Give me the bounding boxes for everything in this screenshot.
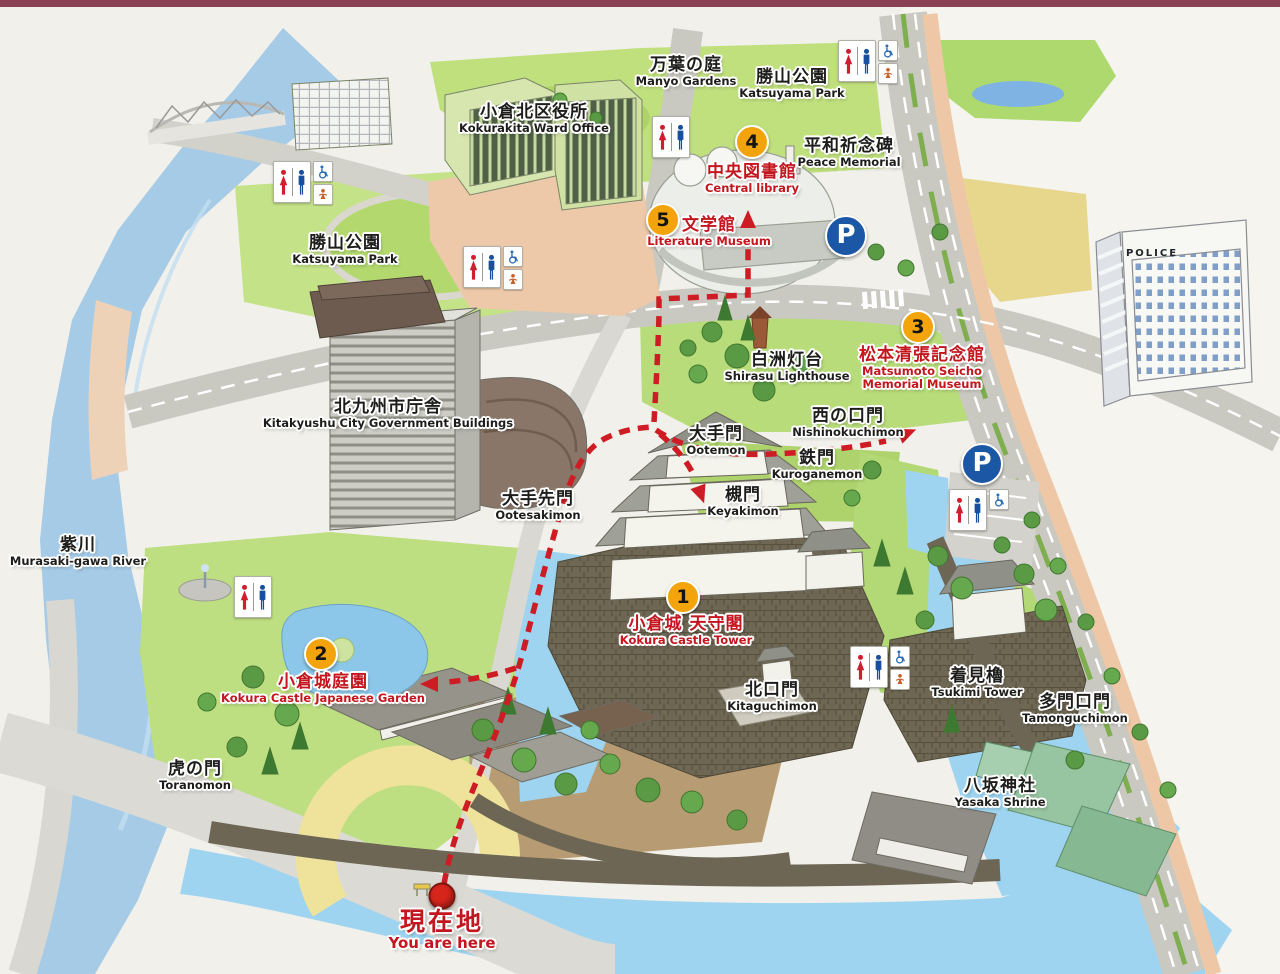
place-name-english: Literature Museum: [647, 235, 771, 248]
place-name-japanese: 文学館: [647, 215, 771, 235]
place-label-peace-memorial: 平和祈念碑Peace Memorial: [797, 136, 900, 169]
female-icon: [238, 584, 251, 611]
female-icon: [953, 497, 966, 524]
place-name-japanese: 勝山公園: [292, 233, 397, 253]
place-label-toranomon: 虎の門Toranomon: [159, 759, 231, 792]
place-name-english: Kokura Castle Japanese Garden: [221, 692, 425, 705]
place-label-keyakimon: 槻門Keyakimon: [707, 485, 778, 518]
male-icon: [256, 584, 269, 611]
baby-icon: [313, 184, 333, 205]
restroom-icon: [652, 116, 690, 158]
place-name-english: Central library: [705, 182, 799, 195]
place-name-english: Tamonguchimon: [1022, 712, 1128, 725]
place-label-katsuyama-park-west: 勝山公園Katsuyama Park: [292, 233, 397, 266]
wheelchair-icon: [313, 161, 333, 182]
male-female-restroom-sign: [234, 576, 272, 618]
place-name-japanese: 勝山公園: [739, 67, 844, 87]
place-label-murasaki-gawa-river: 紫川Murasaki-gawa River: [10, 535, 146, 568]
wheelchair-icon: [503, 246, 523, 267]
place-name-japanese: 小倉北区役所: [459, 102, 609, 122]
male-icon: [860, 48, 873, 75]
place-name-english: Kokurakita Ward Office: [459, 122, 609, 135]
place-label-tsukimi-tower: 着見櫓Tsukimi Tower: [931, 666, 1022, 699]
place-name-japanese: 西の口門: [792, 406, 903, 426]
place-name-japanese: 大手先門: [495, 489, 580, 509]
divider: [292, 168, 293, 196]
baby-icon: [503, 269, 523, 290]
place-label-you-are-here: 現在地You are here: [388, 908, 495, 952]
accessibility-icons: [890, 646, 910, 690]
place-name-english: Peace Memorial: [797, 156, 900, 169]
place-label-yasaka-shrine: 八坂神社Yasaka Shrine: [954, 776, 1045, 809]
you-are-here-marker: [429, 883, 456, 910]
place-name-english: Kitaguchimon: [727, 700, 817, 713]
current-location-dot: [429, 883, 456, 910]
place-label-matsumoto-seicho-memorial-museum: 松本清張記念館Matsumoto Seicho Memorial Museum: [859, 345, 985, 391]
place-label-shirasu-lighthouse: 白洲灯台Shirasu Lighthouse: [725, 350, 850, 383]
place-label-manyo-gardens: 万葉の庭Manyo Gardens: [636, 55, 737, 88]
place-name-english: Katsuyama Park: [292, 253, 397, 266]
place-label-kokura-castle-tower: 小倉城 天守閣Kokura Castle Tower: [620, 614, 752, 647]
site-number-badge-4: 4: [735, 125, 769, 159]
place-name-english: Katsuyama Park: [739, 87, 844, 100]
place-name-english: Kitakyushu City Government Buildings: [263, 417, 513, 430]
accessibility-icons: [313, 161, 333, 205]
place-name-english: Toranomon: [159, 779, 231, 792]
female-icon: [467, 254, 480, 281]
place-name-english: POLICE: [1126, 247, 1178, 260]
male-female-restroom-sign: [652, 116, 690, 158]
place-label-nishinokuchimon: 西の口門Nishinokuchimon: [792, 406, 903, 439]
place-name-english: Yasaka Shrine: [954, 796, 1045, 809]
place-name-japanese: 現在地: [388, 908, 495, 935]
map-root: PP12345万葉の庭Manyo Gardens勝山公園Katsuyama Pa…: [0, 0, 1280, 974]
male-icon: [971, 497, 984, 524]
place-name-japanese: 松本清張記念館: [859, 345, 985, 365]
place-name-japanese: 着見櫓: [931, 666, 1022, 686]
male-icon: [485, 254, 498, 281]
place-name-english: Keyakimon: [707, 505, 778, 518]
wheelchair-icon: [989, 489, 1009, 510]
place-label-kitaguchimon: 北口門Kitaguchimon: [727, 680, 817, 713]
baby-icon: [890, 669, 910, 690]
place-label-kokura-castle-garden: 小倉城庭園Kokura Castle Japanese Garden: [221, 672, 425, 705]
female-icon: [277, 169, 290, 196]
place-label-kuroganemon: 鉄門Kuroganemon: [772, 448, 863, 481]
place-name-japanese: 八坂神社: [954, 776, 1045, 796]
wheelchair-icon: [890, 646, 910, 667]
female-icon: [854, 654, 867, 681]
accessibility-icons: [989, 489, 1009, 510]
baby-icon: [878, 63, 898, 84]
parking-icon: P: [961, 443, 1003, 485]
restroom-icon: [838, 40, 898, 84]
place-name-english: Matsumoto Seicho Memorial Museum: [859, 365, 985, 391]
place-label-ootesakimon: 大手先門Ootesakimon: [495, 489, 580, 522]
place-label-ootemon: 大手門Ootemon: [686, 424, 745, 457]
place-name-japanese: 槻門: [707, 485, 778, 505]
male-icon: [674, 124, 687, 151]
place-name-english: Ootesakimon: [495, 509, 580, 522]
place-label-katsuyama-park-north: 勝山公園Katsuyama Park: [739, 67, 844, 100]
restroom-icon: [850, 646, 910, 690]
place-name-japanese: 北九州市庁舎: [263, 397, 513, 417]
restroom-icon: [949, 489, 1009, 531]
site-number-badge-1: 1: [666, 580, 700, 614]
place-label-kokurakita-ward-office: 小倉北区役所Kokurakita Ward Office: [459, 102, 609, 135]
divider: [857, 47, 858, 75]
place-label-police-station: POLICE: [1126, 247, 1178, 260]
place-label-tamonguchimon: 多門口門Tamonguchimon: [1022, 692, 1128, 725]
site-number-badge-2: 2: [304, 637, 338, 671]
male-female-restroom-sign: [949, 489, 987, 531]
place-name-japanese: 多門口門: [1022, 692, 1128, 712]
accessibility-icons: [878, 40, 898, 84]
place-name-japanese: 大手門: [686, 424, 745, 444]
place-name-english: You are here: [388, 935, 495, 952]
restroom-icon: [463, 246, 523, 290]
place-name-japanese: 平和祈念碑: [797, 136, 900, 156]
place-name-japanese: 北口門: [727, 680, 817, 700]
divider: [671, 123, 672, 151]
place-name-japanese: 中央図書館: [705, 162, 799, 182]
divider: [253, 583, 254, 611]
place-name-japanese: 虎の門: [159, 759, 231, 779]
place-label-kitakyushu-city-government: 北九州市庁舎Kitakyushu City Government Buildin…: [263, 397, 513, 430]
divider: [869, 653, 870, 681]
site-number-badge-3: 3: [901, 310, 935, 344]
place-name-japanese: 小倉城庭園: [221, 672, 425, 692]
parking-icon: P: [825, 215, 867, 257]
male-female-restroom-sign: [273, 161, 311, 203]
restroom-icon: [234, 576, 272, 618]
accessibility-icons: [503, 246, 523, 290]
place-name-english: Tsukimi Tower: [931, 686, 1022, 699]
divider: [968, 496, 969, 524]
place-name-japanese: 鉄門: [772, 448, 863, 468]
place-label-central-library: 中央図書館Central library: [705, 162, 799, 195]
female-icon: [656, 124, 669, 151]
place-name-japanese: 紫川: [10, 535, 146, 555]
divider: [482, 253, 483, 281]
male-icon: [872, 654, 885, 681]
place-name-english: Manyo Gardens: [636, 75, 737, 88]
place-name-japanese: 小倉城 天守閣: [620, 614, 752, 634]
male-female-restroom-sign: [850, 646, 888, 688]
place-name-japanese: 白洲灯台: [725, 350, 850, 370]
place-name-english: Kuroganemon: [772, 468, 863, 481]
male-female-restroom-sign: [463, 246, 501, 288]
place-name-english: Nishinokuchimon: [792, 426, 903, 439]
wheelchair-icon: [878, 40, 898, 61]
map-overlay-layer: PP12345万葉の庭Manyo Gardens勝山公園Katsuyama Pa…: [0, 0, 1280, 974]
place-name-english: Kokura Castle Tower: [620, 634, 752, 647]
place-name-japanese: 万葉の庭: [636, 55, 737, 75]
place-name-english: Shirasu Lighthouse: [725, 370, 850, 383]
place-name-english: Ootemon: [686, 444, 745, 457]
place-name-english: Murasaki-gawa River: [10, 555, 146, 568]
restroom-icon: [273, 161, 333, 205]
male-icon: [295, 169, 308, 196]
place-label-literature-museum: 文学館Literature Museum: [647, 215, 771, 248]
